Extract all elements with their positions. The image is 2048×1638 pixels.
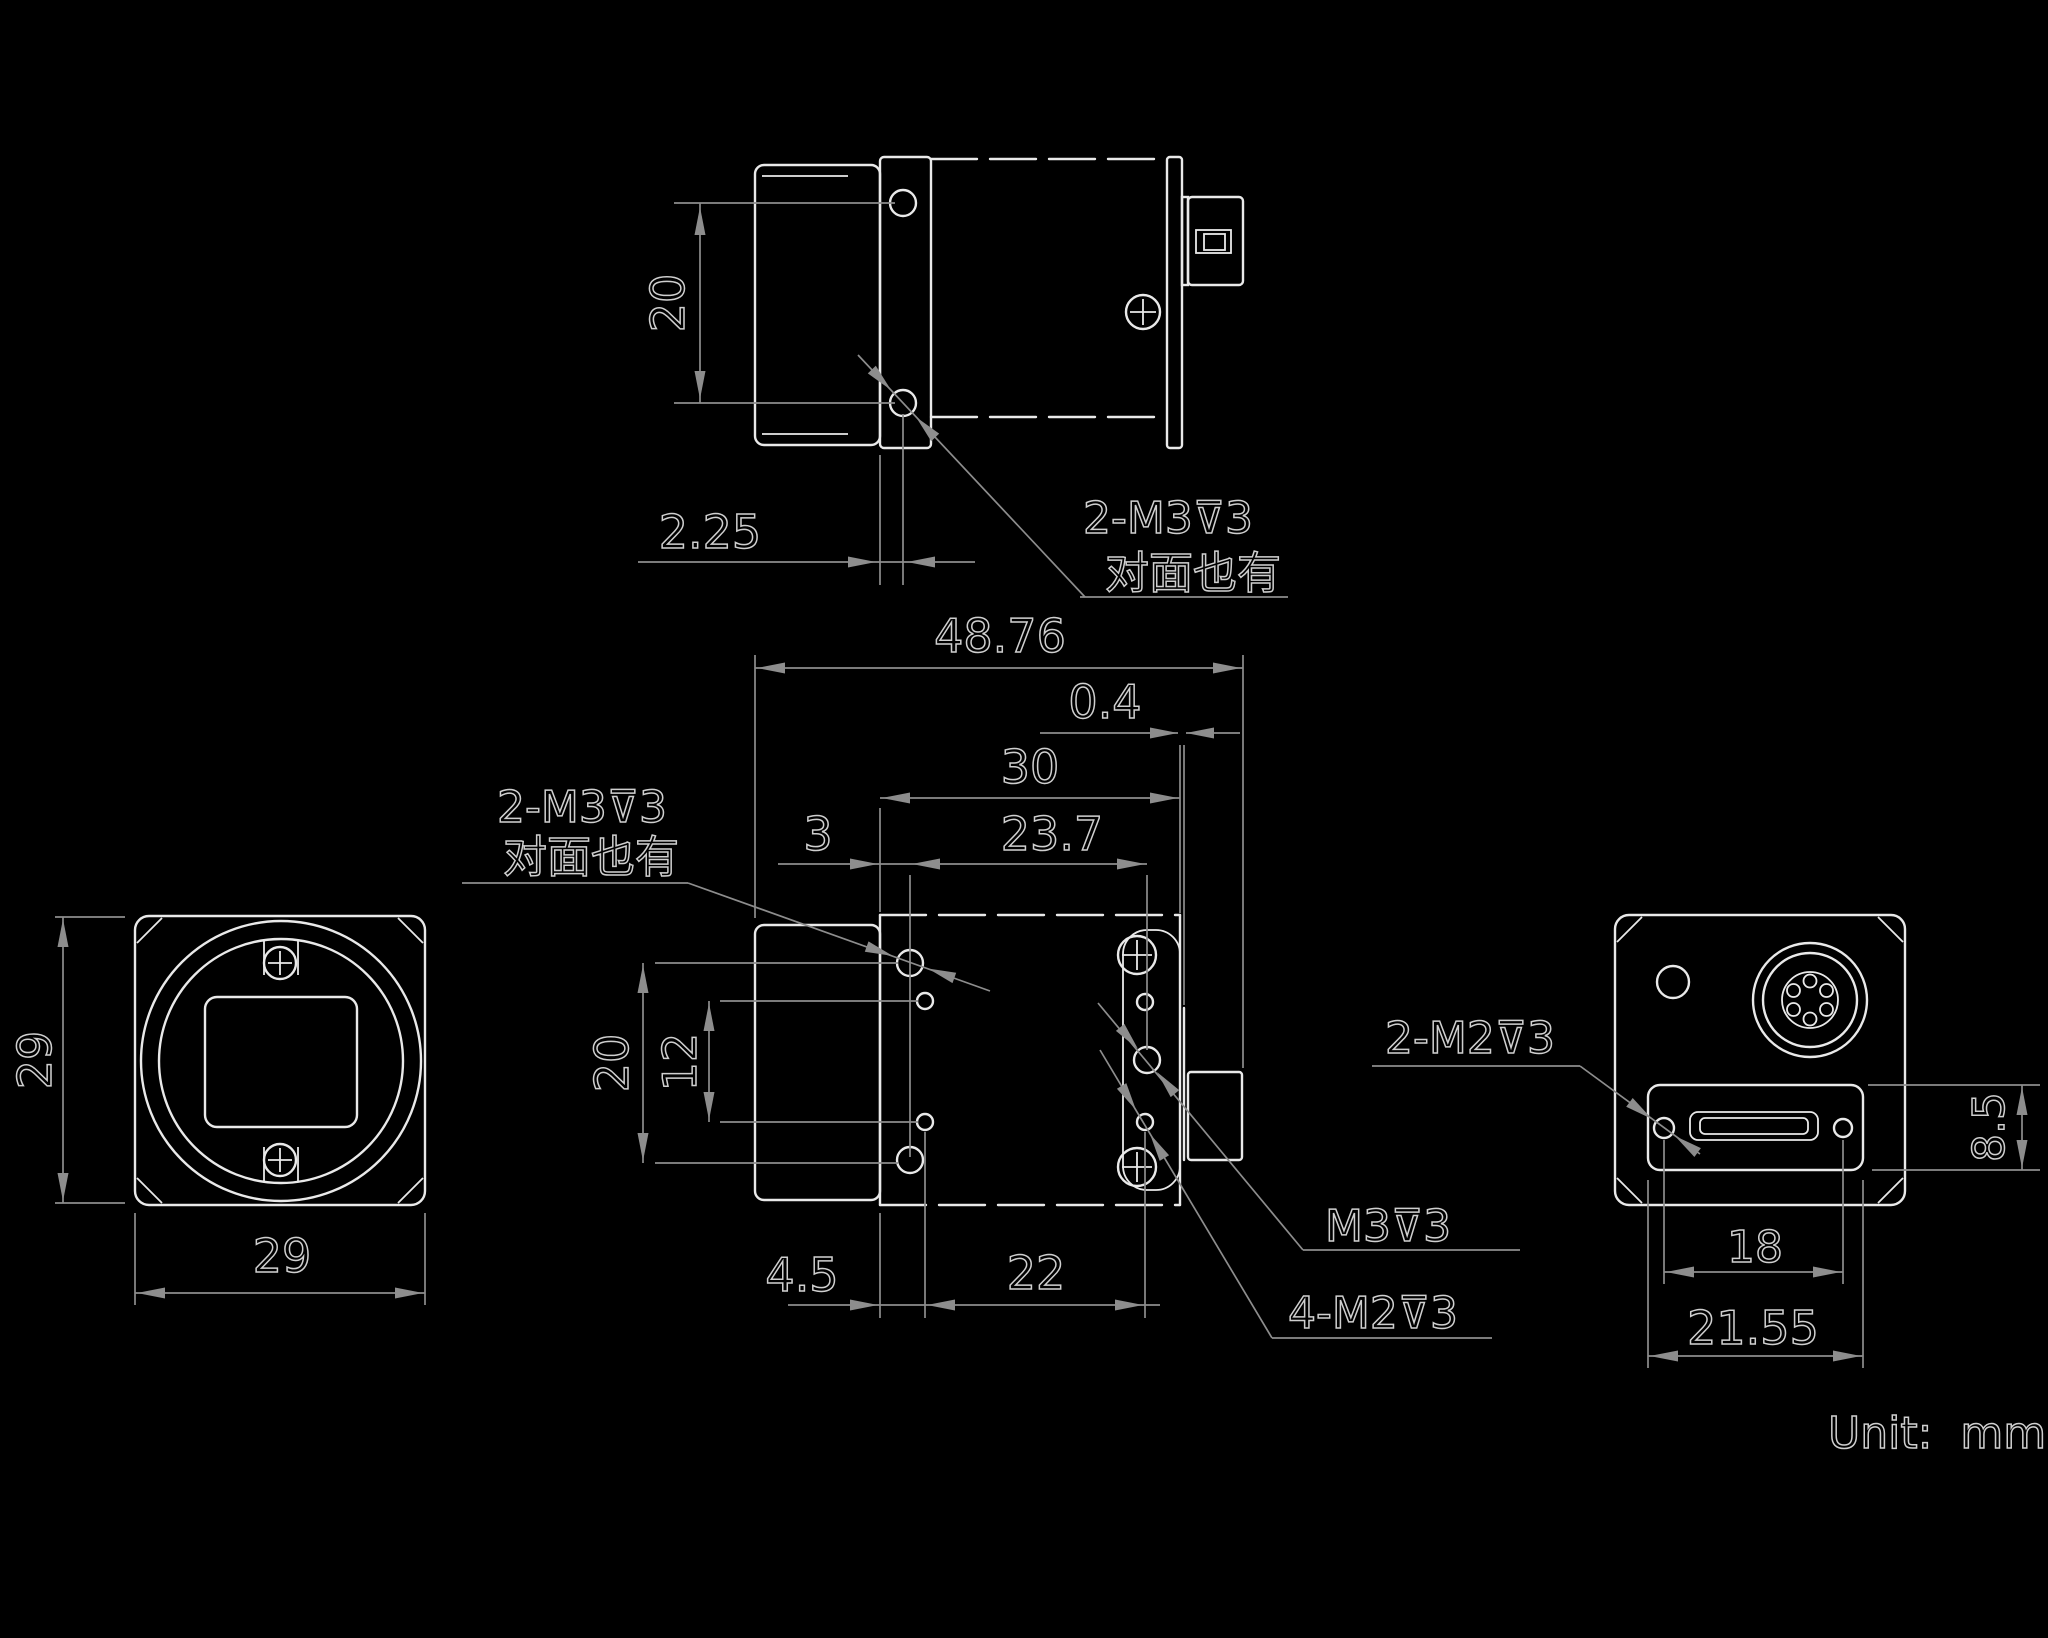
dim-front-29h: 29	[135, 1213, 425, 1305]
camera-dimension-drawing: 20 2.25 2-M3⊽3 对面也有	[0, 0, 2048, 1638]
dim-text: 21.55	[1687, 1301, 1819, 1355]
side-connector	[1188, 1072, 1242, 1160]
side-lens-barrel	[755, 925, 880, 1200]
dim-side-12: 12	[653, 1001, 918, 1122]
top-view: 20 2.25 2-M3⊽3 对面也有	[638, 157, 1288, 599]
m2-hole-icon	[1834, 1119, 1852, 1137]
dim-text: 12	[653, 1033, 707, 1092]
m2-hole-icon	[917, 1114, 933, 1130]
top-rear-plate	[1167, 157, 1182, 448]
dim-text: 20	[641, 274, 695, 333]
dim-text: 23.7	[1001, 807, 1103, 861]
dim-side-4-5-22: 4.5 22	[765, 1132, 1160, 1318]
screw-icon	[264, 941, 298, 979]
dim-text: 22	[1007, 1246, 1066, 1300]
dim-front-29v: 29	[8, 917, 125, 1203]
usb-port-icon	[1690, 1112, 1818, 1140]
front-view: 29 29	[8, 916, 425, 1305]
dim-text: 18	[1727, 1222, 1783, 1273]
dim-text: 30	[1001, 740, 1060, 794]
dim-side-20: 20	[585, 963, 898, 1163]
side-m2-callout: 4-M2⊽3	[1100, 1050, 1492, 1339]
thread-label: 4-M2⊽3	[1288, 1288, 1458, 1339]
thread-label: 2-M2⊽3	[1385, 1013, 1555, 1064]
dim-text: 48.76	[934, 609, 1066, 663]
unit-note: Unit: mm	[1828, 1408, 2046, 1459]
dim-text: 3	[803, 807, 832, 861]
dim-text: 20	[585, 1034, 639, 1093]
thread-label: 2-M3⊽3	[497, 782, 667, 833]
dim-text: 29	[253, 1229, 312, 1283]
top-front-plate	[880, 157, 931, 448]
screw-icon	[1126, 295, 1160, 329]
dim-text: 4.5	[765, 1248, 838, 1302]
screw-icon	[1118, 1148, 1156, 1186]
screw-icon	[1118, 936, 1156, 974]
dim-back-18: 18	[1664, 1140, 1843, 1284]
screw-icon	[264, 1144, 298, 1181]
io-connector-icon	[1753, 943, 1867, 1057]
m2-hole-icon	[1137, 994, 1153, 1010]
led-indicator-icon	[1657, 966, 1689, 998]
usb-plug-window-inner	[1204, 234, 1225, 250]
dim-text: 8.5	[1964, 1092, 2015, 1162]
dim-top-2-25: 2.25	[638, 414, 975, 585]
dim-top-20: 20	[641, 203, 895, 403]
sensor-window	[205, 997, 357, 1127]
back-thread-callout: 2-M2⊽3	[1372, 1013, 1701, 1157]
usb-port-inner	[1700, 1118, 1808, 1134]
dim-text: 29	[8, 1031, 62, 1090]
drawing-canvas: 20 2.25 2-M3⊽3 对面也有	[0, 0, 2048, 1638]
thread-label: M3⊽3	[1325, 1201, 1451, 1252]
thread-note: 对面也有	[503, 832, 679, 883]
usb-recess	[1648, 1085, 1863, 1170]
back-view: 8.5 18 21.55 2-M2⊽3	[1372, 915, 2040, 1368]
thread-label: 2-M3⊽3	[1083, 493, 1253, 544]
dim-back-8-5: 8.5	[1868, 1085, 2040, 1170]
m2-hole-icon	[917, 993, 933, 1009]
dim-text: 0.4	[1068, 675, 1141, 729]
lens-mount-inner	[159, 939, 403, 1183]
dim-text: 2.25	[659, 505, 761, 559]
thread-note: 对面也有	[1105, 548, 1281, 599]
side-view: 48.76 0.4 30 3 23.7	[462, 609, 1520, 1339]
